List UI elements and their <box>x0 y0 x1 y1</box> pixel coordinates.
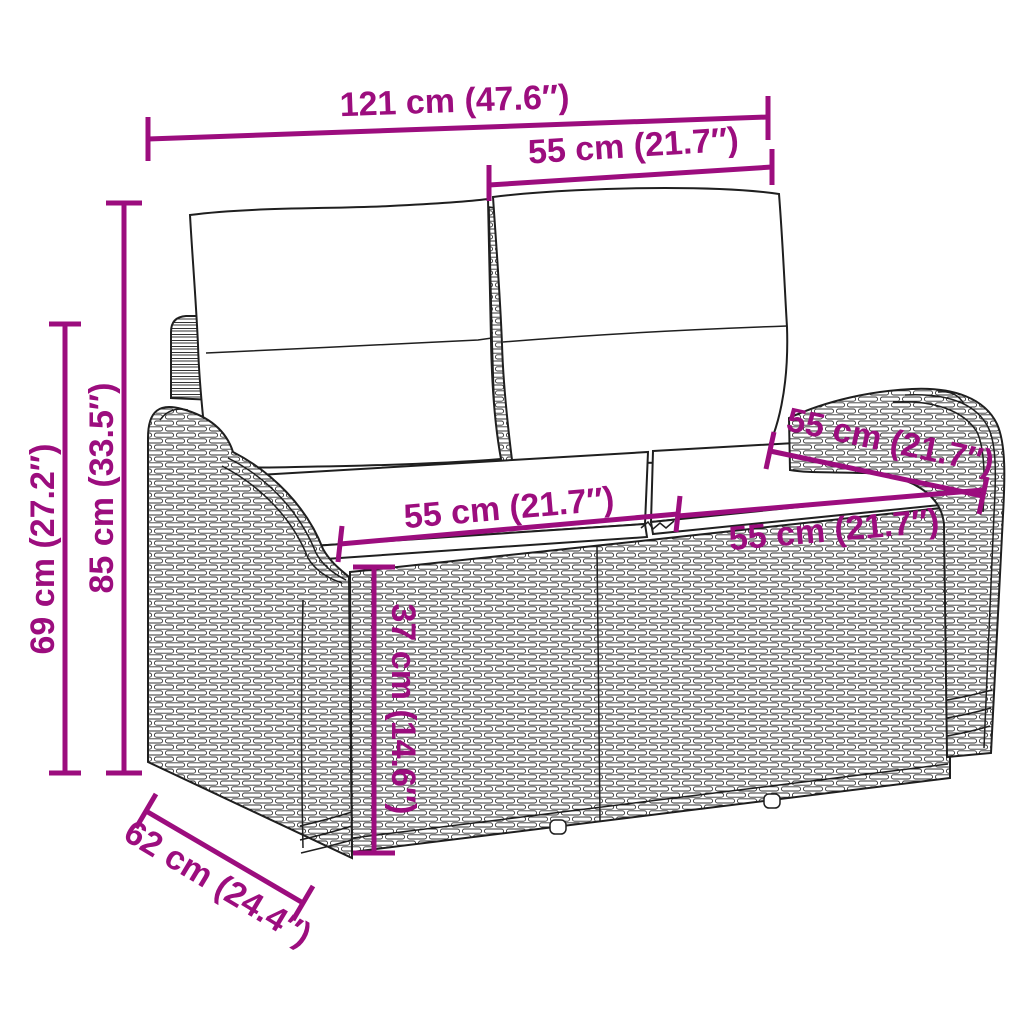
base-front-drawing <box>350 507 950 852</box>
dim-label-armrest-height: 69 cm (27.2″) <box>24 444 62 655</box>
dim-armrest-height: 69 cm (27.2″) <box>24 324 81 773</box>
left-back-cushion <box>190 199 501 467</box>
dimension-diagram: 121 cm (47.6″) 55 cm (21.7″) 85 cm (33.5… <box>0 0 1024 1024</box>
dim-total-height: 85 cm (33.5″) <box>83 203 142 773</box>
right-back-cushion <box>493 188 787 463</box>
diagram-canvas: 121 cm (47.6″) 55 cm (21.7″) 85 cm (33.5… <box>0 0 1024 1024</box>
dim-label-total-height: 85 cm (33.5″) <box>83 383 121 594</box>
base-foot-right <box>764 794 780 808</box>
dim-label-overall-depth: 62 cm (24.4″) <box>117 813 317 954</box>
dim-label-seat-height: 37 cm (14.6″) <box>384 604 422 815</box>
dim-label-back-section-width: 55 cm (21.7″) <box>527 120 740 171</box>
dim-label-overall-width: 121 cm (47.6″) <box>339 78 570 124</box>
base-foot-left <box>550 820 566 834</box>
